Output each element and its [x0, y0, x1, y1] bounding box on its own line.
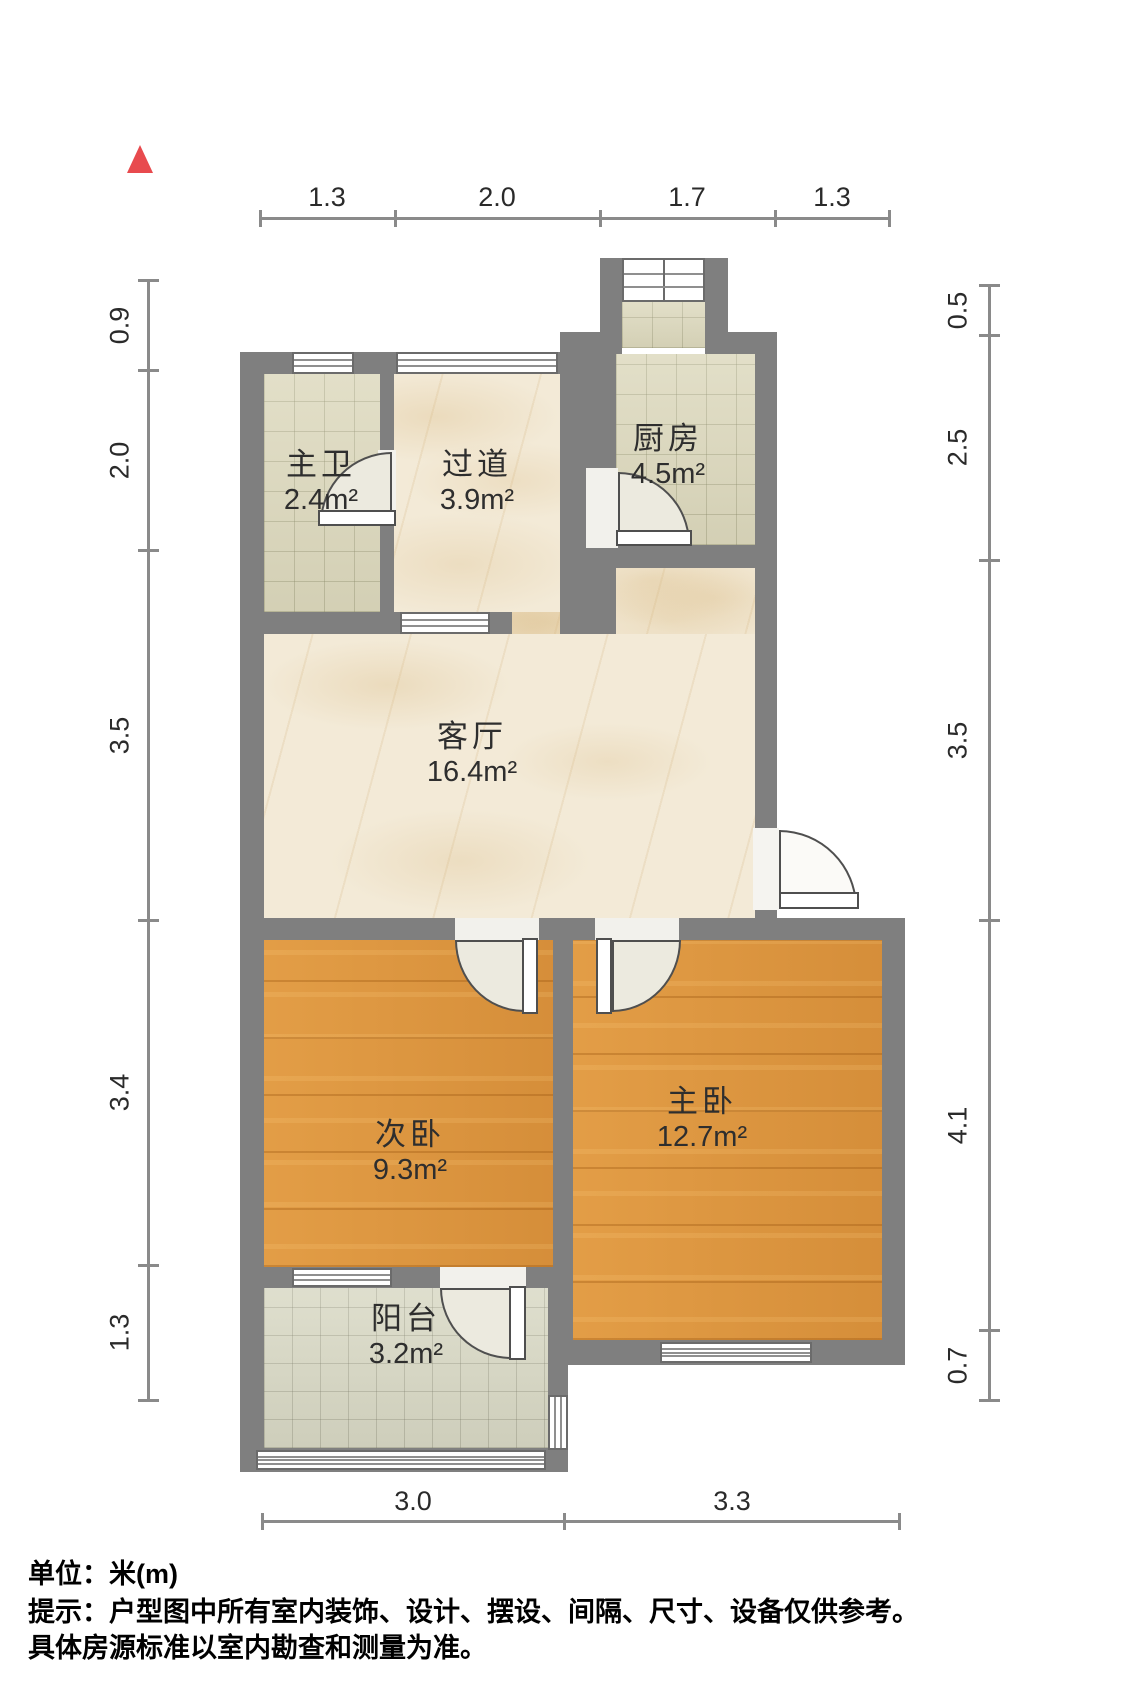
- living-room-interior-window: [400, 612, 490, 634]
- dimension-value: 3.5: [105, 696, 136, 776]
- dimension-value: 0.5: [943, 271, 974, 351]
- balcony-door-opening: [440, 1267, 526, 1288]
- dimension-tick: [599, 210, 602, 227]
- wall: [560, 332, 622, 354]
- room-area: 12.7m²: [622, 1120, 782, 1154]
- dimension-value: 3.0: [373, 1486, 453, 1517]
- dimension-tick: [979, 284, 1000, 287]
- second-bedroom-door-leaf: [522, 938, 538, 1014]
- dimension-value: 1.7: [647, 182, 727, 213]
- dimension-tick: [261, 1513, 264, 1530]
- bathroom-window: [292, 352, 354, 374]
- living-room-label: 客厅 16.4m²: [392, 718, 552, 789]
- dimension-tick: [979, 334, 1000, 337]
- dimension-value: 2.5: [943, 408, 974, 488]
- kitchen-label: 厨房 4.5m²: [588, 420, 748, 491]
- dimension-tick: [979, 559, 1000, 562]
- dimension-value: 1.3: [792, 182, 872, 213]
- balcony-door-leaf: [509, 1286, 526, 1360]
- dimension-tick: [979, 919, 1000, 922]
- master-bedroom-label: 主卧 12.7m²: [622, 1083, 782, 1154]
- room-name: 次卧: [330, 1116, 490, 1153]
- wall: [548, 1288, 568, 1395]
- dimension-value: 3.3: [692, 1486, 772, 1517]
- dimension-value: 0.7: [943, 1326, 974, 1406]
- second-bedroom-balcony-window: [292, 1268, 392, 1287]
- disclaimer-line-1: 提示：户型图中所有室内装饰、设计、摆设、间隔、尺寸、设备仅供参考。: [28, 1590, 919, 1629]
- dimension-tick: [563, 1513, 566, 1530]
- wall: [616, 545, 755, 568]
- room-name: 过道: [397, 446, 557, 483]
- room-area: 16.4m²: [392, 755, 552, 789]
- dimension-value: 2.0: [457, 182, 537, 213]
- room-name: 客厅: [392, 718, 552, 755]
- wall: [240, 352, 264, 1472]
- room-name: 主卧: [622, 1083, 782, 1120]
- window-divider: [663, 260, 665, 300]
- master-bedroom-door-leaf: [596, 938, 612, 1014]
- balcony-window: [256, 1450, 546, 1470]
- dimension-tick: [138, 279, 159, 282]
- balcony-side-window: [548, 1395, 568, 1450]
- dimension-value: 4.1: [943, 1086, 974, 1166]
- wall: [553, 940, 573, 1340]
- dimension-line-right: [988, 285, 991, 1400]
- dimension-line-bottom: [262, 1520, 900, 1523]
- wall: [755, 332, 777, 830]
- dimension-tick: [138, 1399, 159, 1402]
- dimension-tick: [138, 549, 159, 552]
- dimension-value: 2.0: [105, 421, 136, 501]
- room-area: 2.4m²: [241, 483, 401, 517]
- dimension-tick: [138, 369, 159, 372]
- dimension-value: 3.4: [105, 1053, 136, 1133]
- dimension-tick: [979, 1399, 1000, 1402]
- north-arrow-icon: [127, 145, 153, 173]
- room-area: 4.5m²: [588, 457, 748, 491]
- unit-note: 单位：米(m): [28, 1552, 178, 1591]
- dimension-line-top: [260, 217, 890, 220]
- bathroom-label: 主卫 2.4m²: [241, 446, 401, 517]
- dimension-tick: [898, 1513, 901, 1530]
- room-area: 3.9m²: [397, 483, 557, 517]
- kitchen-door-leaf: [616, 530, 692, 546]
- dimension-tick: [774, 210, 777, 227]
- master-bedroom-door-opening: [595, 918, 679, 940]
- second-bedroom-door-opening: [455, 918, 539, 940]
- balcony-label: 阳台 3.2m²: [326, 1300, 486, 1371]
- living-room-floor-upper: [616, 568, 755, 634]
- room-area: 3.2m²: [326, 1337, 486, 1371]
- room-name: 阳台: [326, 1300, 486, 1337]
- dimension-tick: [138, 919, 159, 922]
- dimension-value: 1.3: [105, 1293, 136, 1373]
- dimension-value: 0.9: [105, 286, 136, 366]
- dimension-tick: [138, 1264, 159, 1267]
- dimension-tick: [394, 210, 397, 227]
- dimension-value: 3.5: [943, 701, 974, 781]
- room-name: 厨房: [588, 420, 748, 457]
- dimension-line-left: [147, 280, 150, 1400]
- hallway-label: 过道 3.9m²: [397, 446, 557, 517]
- dimension-value: 1.3: [287, 182, 367, 213]
- room-name: 主卫: [241, 446, 401, 483]
- floor-plan-canvas: 主卫 2.4m² 过道 3.9m² 厨房 4.5m² 客厅 16.4m² 次卧 …: [0, 0, 1144, 1698]
- disclaimer-line-2: 具体房源标准以室内勘查和测量为准。: [28, 1626, 487, 1665]
- master-bedroom-window: [660, 1342, 812, 1363]
- wall: [240, 918, 905, 940]
- entry-door-leaf: [779, 892, 859, 909]
- entry-door-opening: [753, 828, 779, 910]
- hallway-passage-floor: [512, 612, 560, 634]
- dimension-tick: [888, 210, 891, 227]
- dimension-tick: [259, 210, 262, 227]
- kitchen-bay-floor: [622, 302, 705, 348]
- wall: [882, 918, 905, 1365]
- room-area: 9.3m²: [330, 1153, 490, 1187]
- hallway-window: [396, 352, 558, 374]
- kitchen-window: [622, 258, 705, 302]
- second-bedroom-label: 次卧 9.3m²: [330, 1116, 490, 1187]
- dimension-tick: [979, 1329, 1000, 1332]
